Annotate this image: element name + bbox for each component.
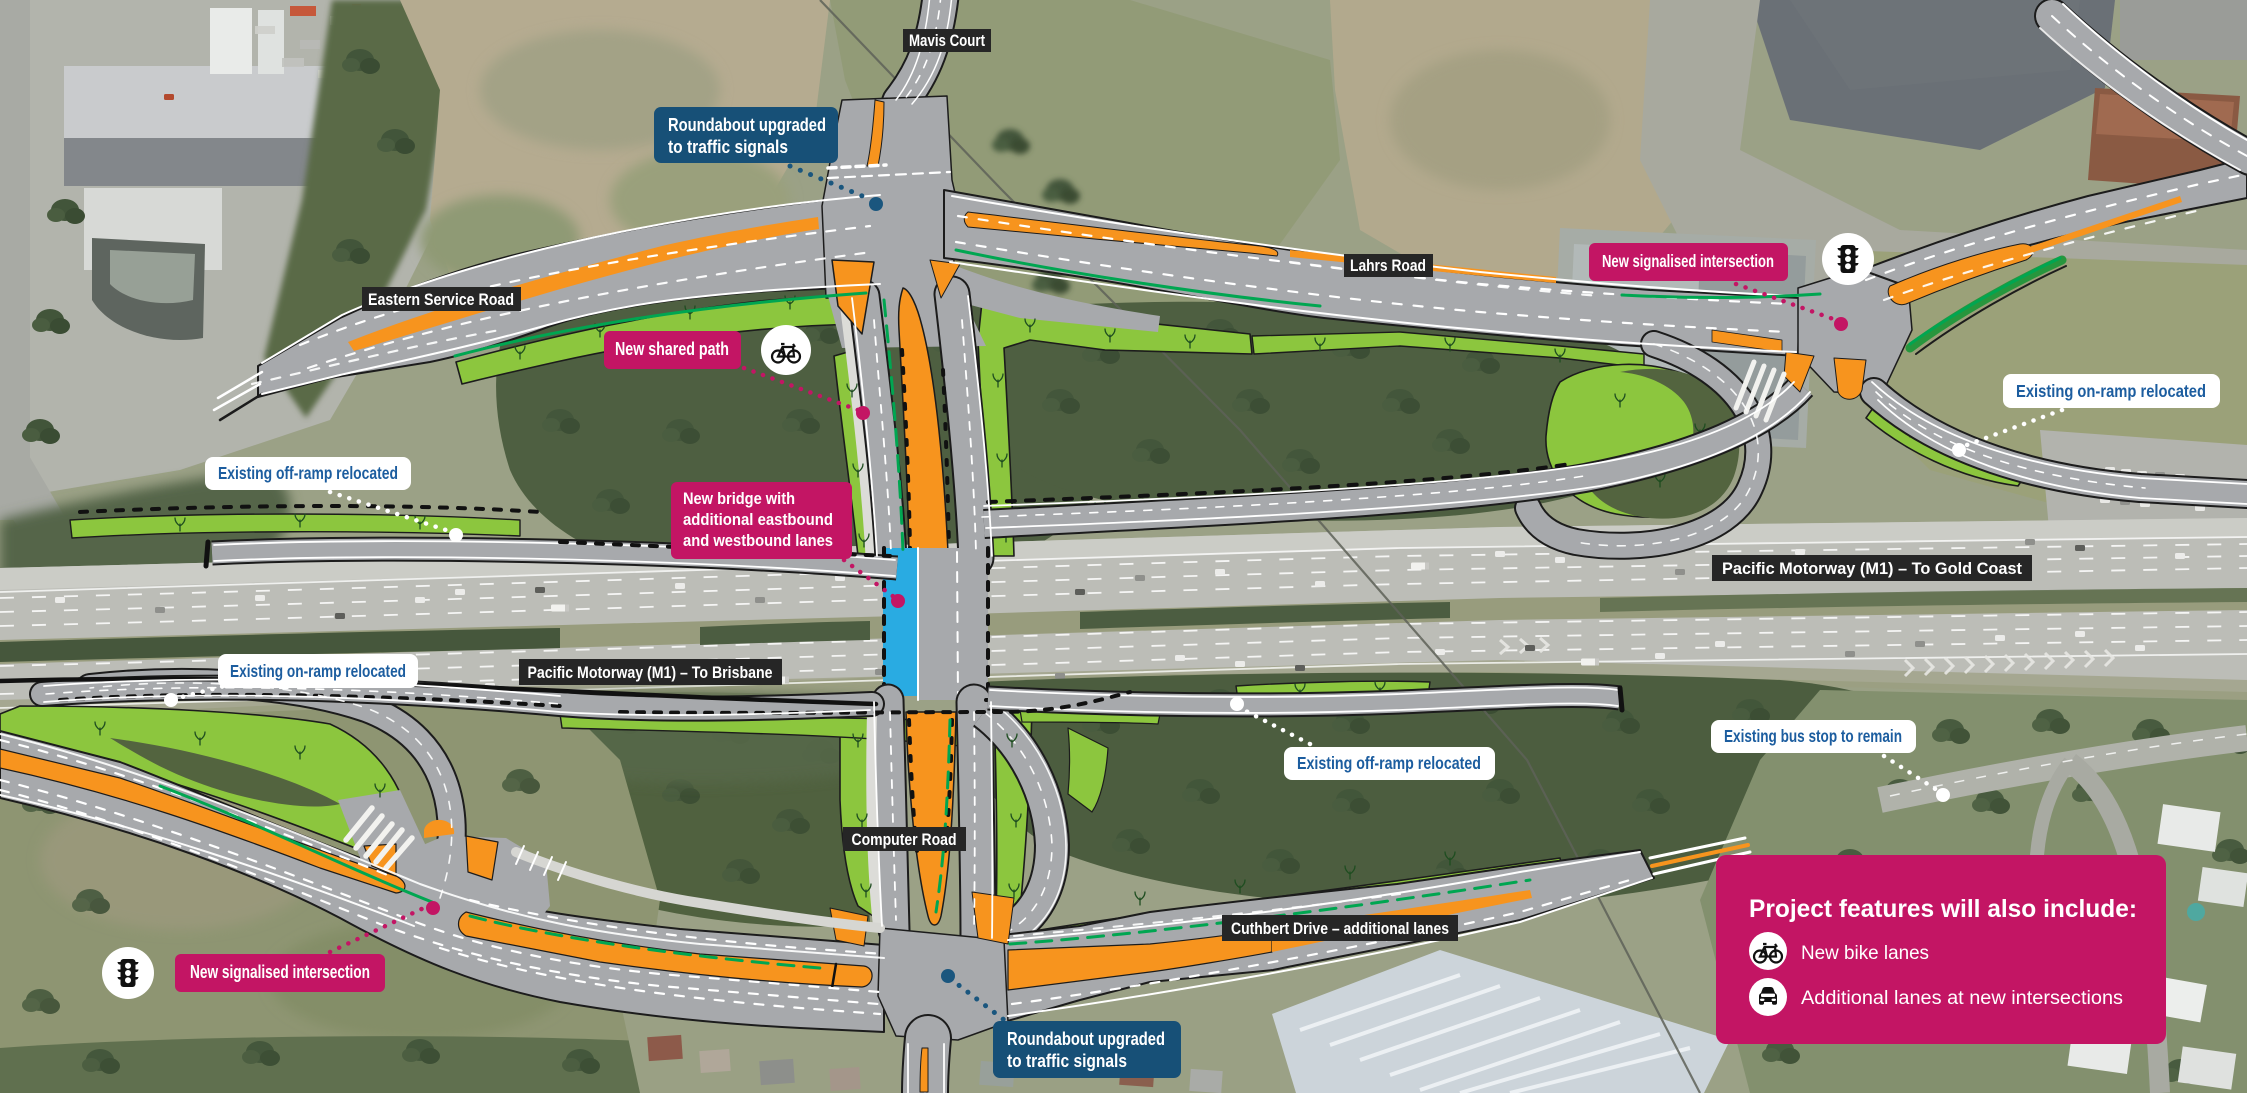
svg-text:Pacific Motorway (M1) – To Gol: Pacific Motorway (M1) – To Gold Coast [1722, 559, 2022, 578]
svg-text:Lahrs Road: Lahrs Road [1350, 256, 1426, 275]
svg-text:New signalised intersection: New signalised intersection [1602, 251, 1774, 271]
svg-text:Roundabout upgraded: Roundabout upgraded [668, 115, 826, 135]
svg-text:New bridge with: New bridge with [683, 489, 795, 508]
svg-text:Pacific Motorway (M1) – To Bri: Pacific Motorway (M1) – To Brisbane [528, 663, 773, 682]
svg-text:Mavis Court: Mavis Court [909, 31, 985, 50]
svg-text:Existing off-ramp relocated: Existing off-ramp relocated [1297, 753, 1481, 773]
svg-text:Project features will also inc: Project features will also include: [1749, 895, 2137, 923]
svg-text:to traffic signals: to traffic signals [668, 137, 788, 157]
svg-text:Cuthbert Drive – additional la: Cuthbert Drive – additional lanes [1231, 919, 1449, 938]
svg-text:Existing off-ramp relocated: Existing off-ramp relocated [218, 463, 398, 483]
svg-text:Additional lanes at new inters: Additional lanes at new intersections [1801, 988, 2123, 1009]
svg-text:Computer Road: Computer Road [852, 830, 957, 849]
svg-text:and westbound lanes: and westbound lanes [683, 531, 833, 550]
svg-text:Roundabout upgraded: Roundabout upgraded [1007, 1029, 1165, 1049]
svg-text:to traffic signals: to traffic signals [1007, 1051, 1127, 1071]
svg-text:New bike lanes: New bike lanes [1801, 943, 1929, 964]
svg-text:additional eastbound: additional eastbound [683, 510, 833, 529]
svg-text:New shared path: New shared path [615, 339, 729, 359]
svg-text:Existing bus stop to remain: Existing bus stop to remain [1724, 726, 1902, 746]
svg-text:Existing on-ramp relocated: Existing on-ramp relocated [2016, 381, 2206, 401]
svg-text:Existing on-ramp relocated: Existing on-ramp relocated [230, 661, 406, 681]
svg-text:New signalised intersection: New signalised intersection [190, 962, 370, 982]
svg-text:Eastern Service Road: Eastern Service Road [368, 290, 514, 309]
